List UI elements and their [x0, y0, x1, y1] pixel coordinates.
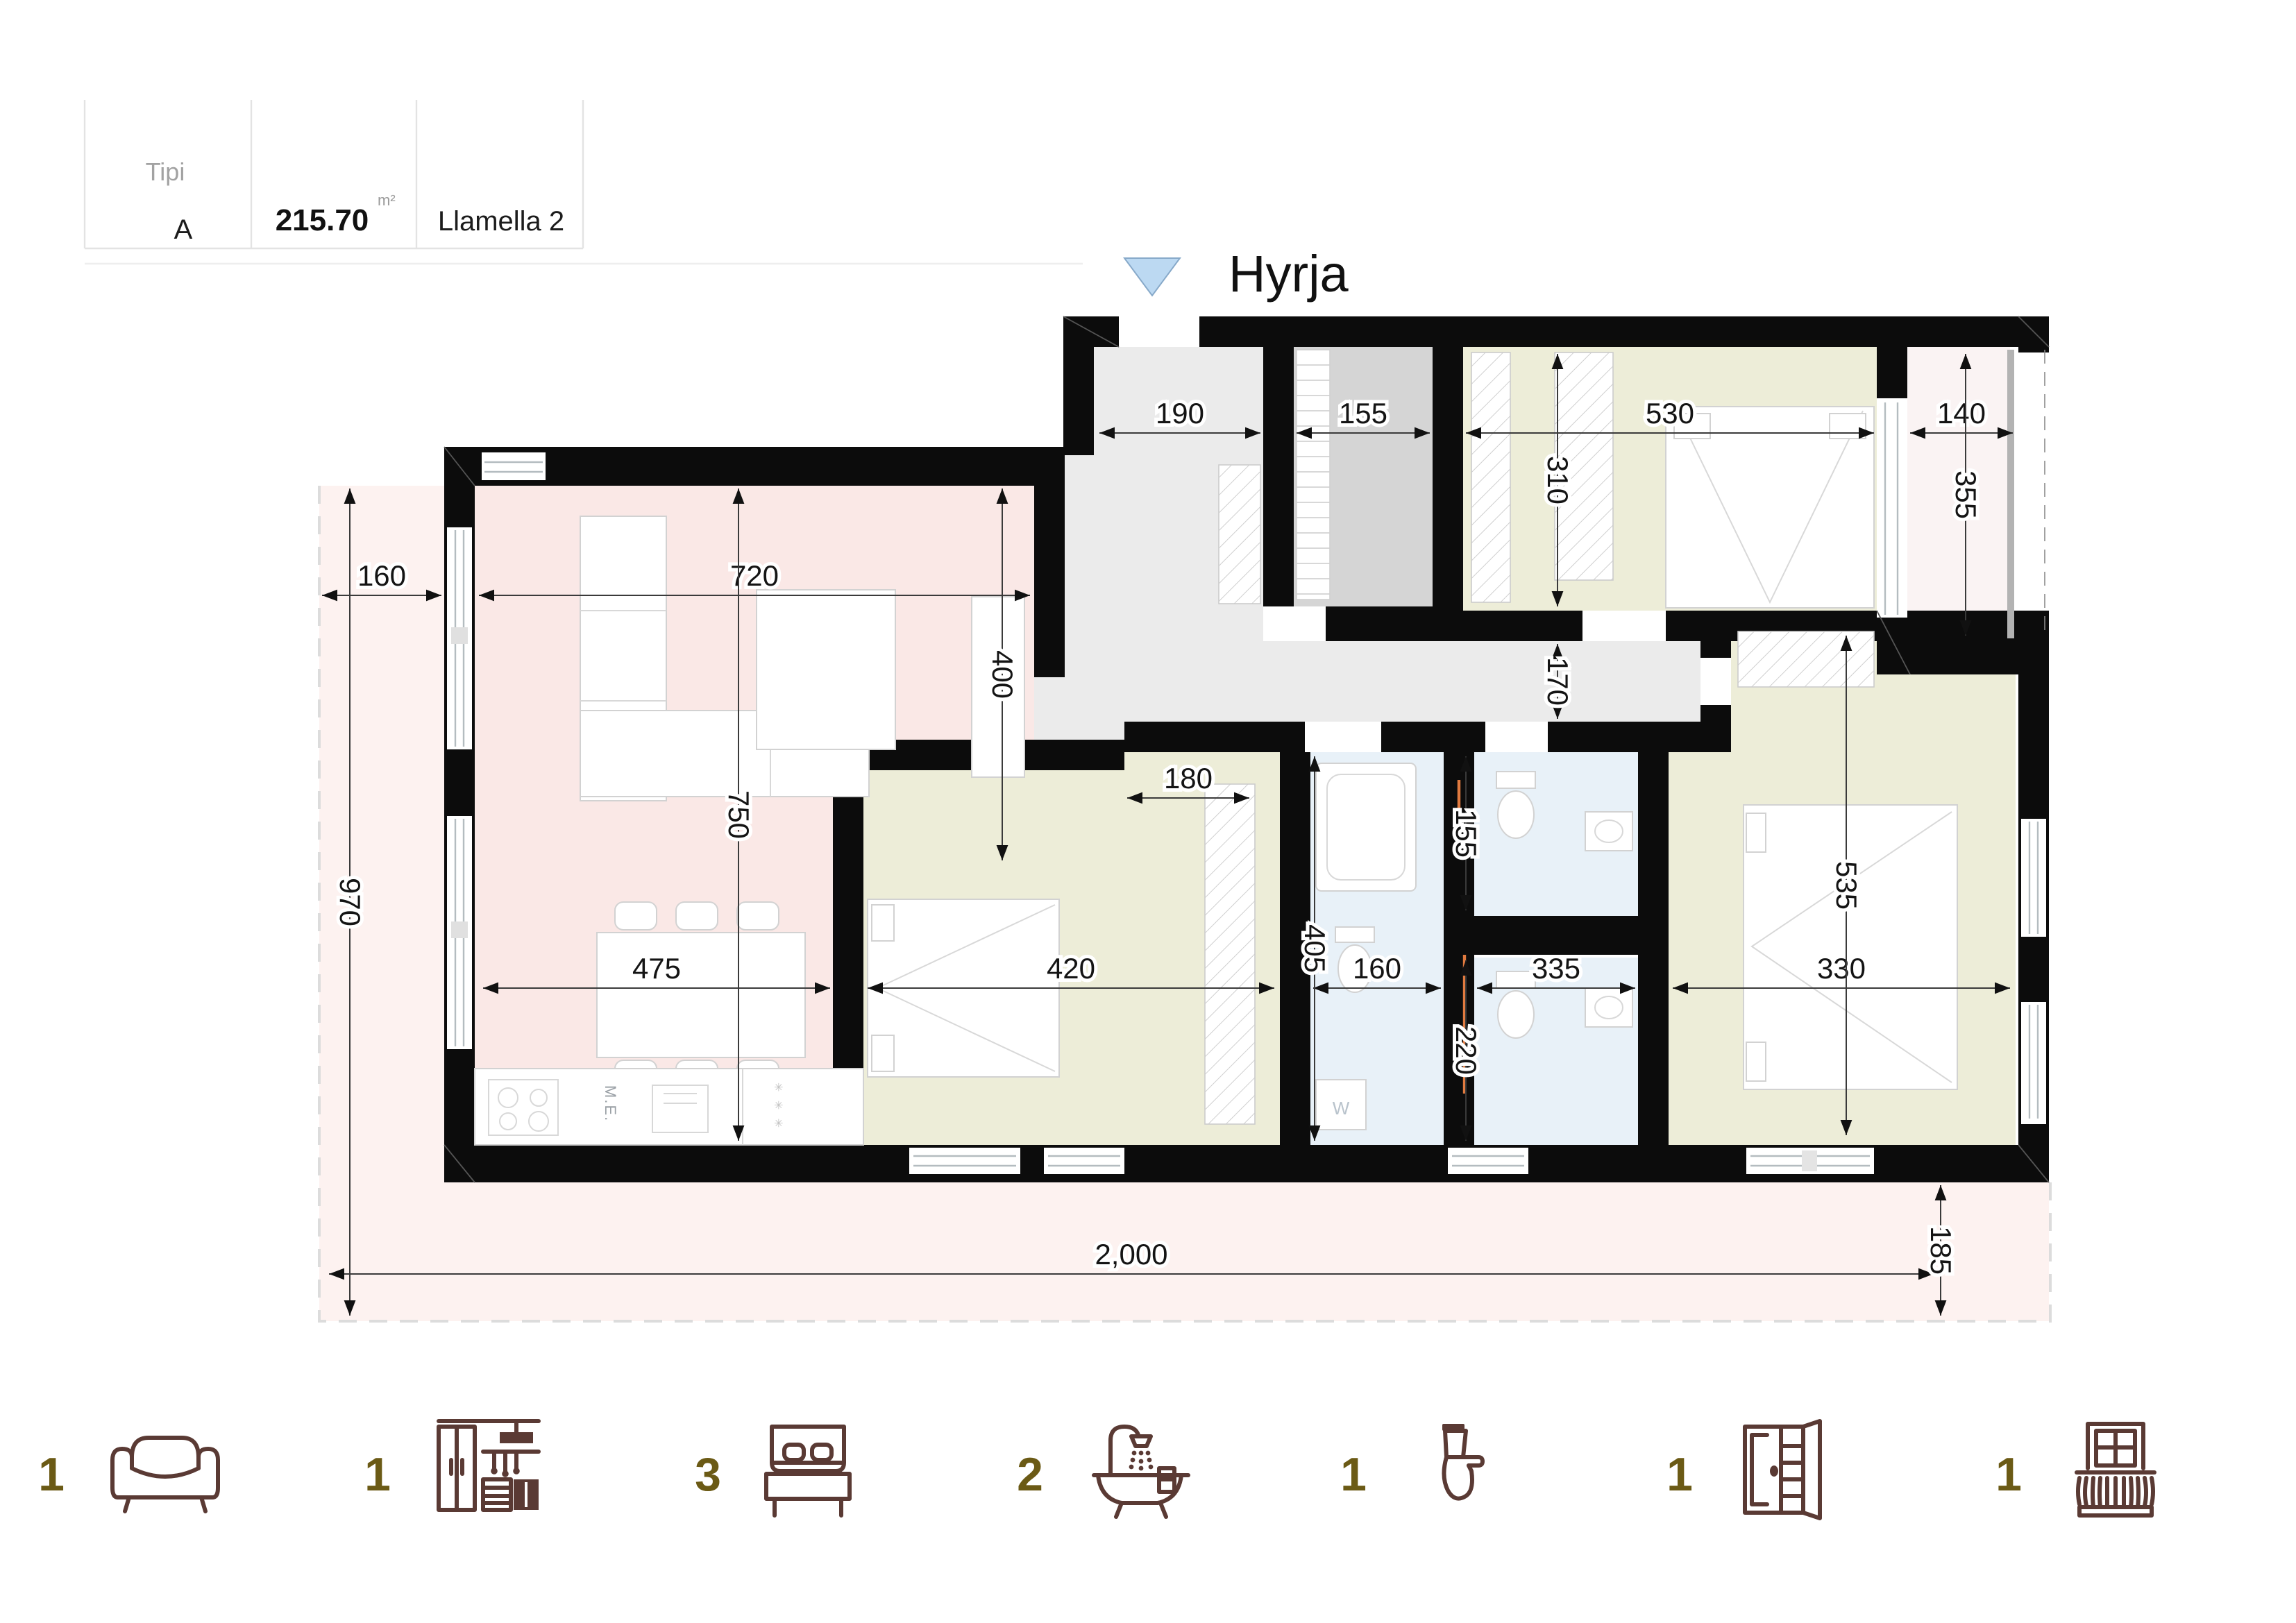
dim-label: 140: [1937, 397, 1986, 430]
dim-label: 160: [357, 559, 406, 592]
dim-label: 190: [1156, 397, 1204, 430]
dim-label: 155: [1450, 809, 1483, 858]
window-bedroom2-bottom-2: [1044, 1148, 1124, 1174]
sink-bathroom3: [1585, 988, 1632, 1027]
legend-item-bathtub: 2: [1017, 1427, 1188, 1517]
legend-item-balcony: 1: [1995, 1424, 2154, 1515]
toilet-bathroom2: [1496, 772, 1535, 838]
legend-item-sofa: 1: [38, 1438, 218, 1511]
dim-label: 335: [1532, 952, 1580, 985]
hall-shelf: [1219, 465, 1260, 604]
balcony-icon: [2077, 1424, 2154, 1515]
window-living-top: [482, 452, 546, 480]
dim-label: 160: [1353, 952, 1401, 985]
title-block: Tipi A 215.70 m² Llamella 2: [85, 100, 1083, 264]
dim-label: 720: [730, 559, 779, 592]
legend-item-toilet: 1: [1340, 1424, 1483, 1501]
kitchen-marks: ✳ ✳ ✳: [772, 1082, 784, 1130]
room-living-upper: [475, 486, 1034, 740]
legend: 1 1: [38, 1421, 2154, 1518]
bed-icon: [766, 1427, 850, 1515]
dim-label: 400: [986, 650, 1019, 699]
legend-item-kitchen-unit: 1: [364, 1421, 539, 1510]
door-bedroom3: [1700, 658, 1731, 705]
wardrobe-bedroom3: [1738, 631, 1874, 687]
window-bath-bottom: [1448, 1148, 1528, 1174]
legend-count-bathtub: 2: [1017, 1448, 1043, 1501]
window-bedroom3-right-2: [2021, 1002, 2046, 1124]
closet-shelves: [1297, 350, 1330, 600]
dim-label: 155: [1339, 397, 1387, 430]
dim-label: 475: [632, 952, 681, 985]
kitchen-unit-label: M.E.: [602, 1085, 619, 1122]
dim-label: 180: [1164, 762, 1213, 794]
legend-item-cabinet: 1: [1666, 1421, 1820, 1518]
dim-label: 2,000: [1095, 1238, 1167, 1271]
dim-label: 970: [334, 878, 366, 926]
toilet-bathroom3: [1496, 971, 1535, 1038]
wardrobe-bedroom1-a: [1471, 352, 1510, 602]
dim-label: 330: [1817, 952, 1866, 985]
coffee-table: [757, 590, 895, 749]
dim-label: 185: [1925, 1226, 1957, 1275]
dim-label: 535: [1830, 861, 1863, 910]
entrance-label: Hyrja: [1229, 245, 1349, 303]
project-name: Llamella 2: [438, 206, 564, 237]
dim-label: 420: [1047, 952, 1095, 985]
bathtub-bathroom1: [1316, 763, 1416, 891]
floor-plan-page: Tipi A 215.70 m² Llamella 2 Hyrja: [0, 0, 2296, 1623]
bed-bedroom3: [1744, 805, 1957, 1089]
door-balcony: [1877, 398, 1907, 618]
bathtub-icon: [1094, 1427, 1188, 1517]
balcony-railing: [2007, 350, 2014, 638]
window-living-left-1: [447, 527, 472, 749]
dim-label: 220: [1450, 1026, 1483, 1075]
legend-count-balcony: 1: [1995, 1448, 2022, 1501]
legend-count-toilet: 1: [1340, 1448, 1367, 1501]
cabinet-icon: [1745, 1421, 1820, 1518]
unit-type-label: Tipi: [146, 158, 185, 186]
dim-label: 310: [1542, 456, 1574, 504]
bed-bedroom1: [1666, 407, 1874, 608]
unit-type-value: A: [174, 214, 193, 245]
dim-label: 170: [1542, 657, 1574, 706]
unit-area-unit: m²: [378, 192, 396, 209]
entrance-marker: Hyrja: [1124, 245, 1349, 303]
floor-plan: M.E. ✳ ✳ ✳: [319, 316, 2050, 1321]
dim-label: 405: [1299, 924, 1331, 973]
legend-item-bed: 3: [695, 1427, 850, 1515]
entrance-arrow-icon: [1124, 258, 1180, 296]
washer-label: W: [1333, 1098, 1350, 1119]
dim-label: 355: [1950, 470, 1982, 519]
unit-area-value: 215.70: [276, 203, 369, 237]
washer-bathroom1: W: [1316, 1080, 1366, 1130]
kitchen-unit-icon: [439, 1421, 539, 1510]
window-living-left-2: [447, 816, 472, 1049]
legend-count-sofa: 1: [38, 1448, 65, 1501]
window-bedroom2-bottom-1: [909, 1148, 1020, 1174]
window-bedroom3-bottom: [1746, 1148, 1874, 1174]
dim-label: 530: [1646, 397, 1694, 430]
legend-count-cabinet: 1: [1666, 1448, 1693, 1501]
legend-count-kitchen-unit: 1: [364, 1448, 391, 1501]
dim-label: 750: [723, 790, 755, 839]
legend-count-bed: 3: [695, 1448, 721, 1501]
wardrobe-bedroom2: [1205, 784, 1255, 1124]
sink-bathroom2: [1585, 812, 1632, 851]
window-bedroom3-right-1: [2021, 819, 2046, 937]
sofa-icon: [112, 1438, 218, 1511]
toilet-icon: [1442, 1424, 1483, 1499]
kitchen-counter: M.E. ✳ ✳ ✳: [475, 1069, 863, 1145]
